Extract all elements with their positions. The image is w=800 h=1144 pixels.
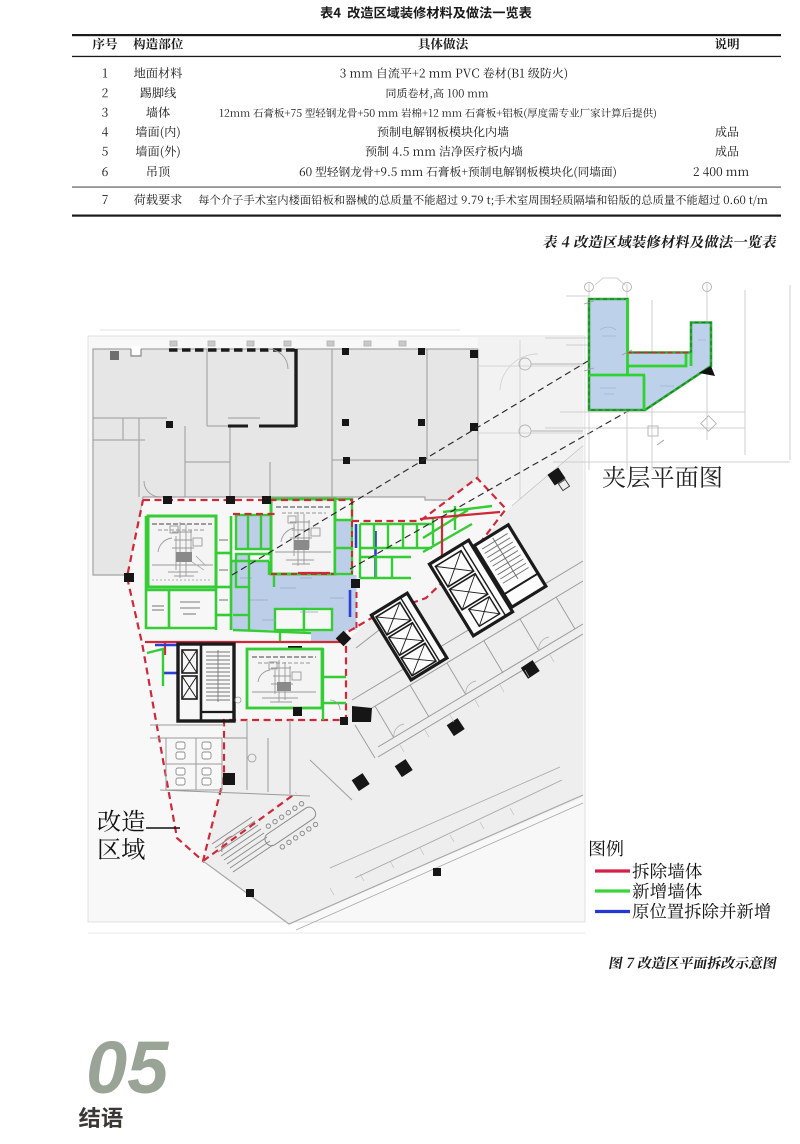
svg-text:05: 05 (86, 1026, 170, 1109)
